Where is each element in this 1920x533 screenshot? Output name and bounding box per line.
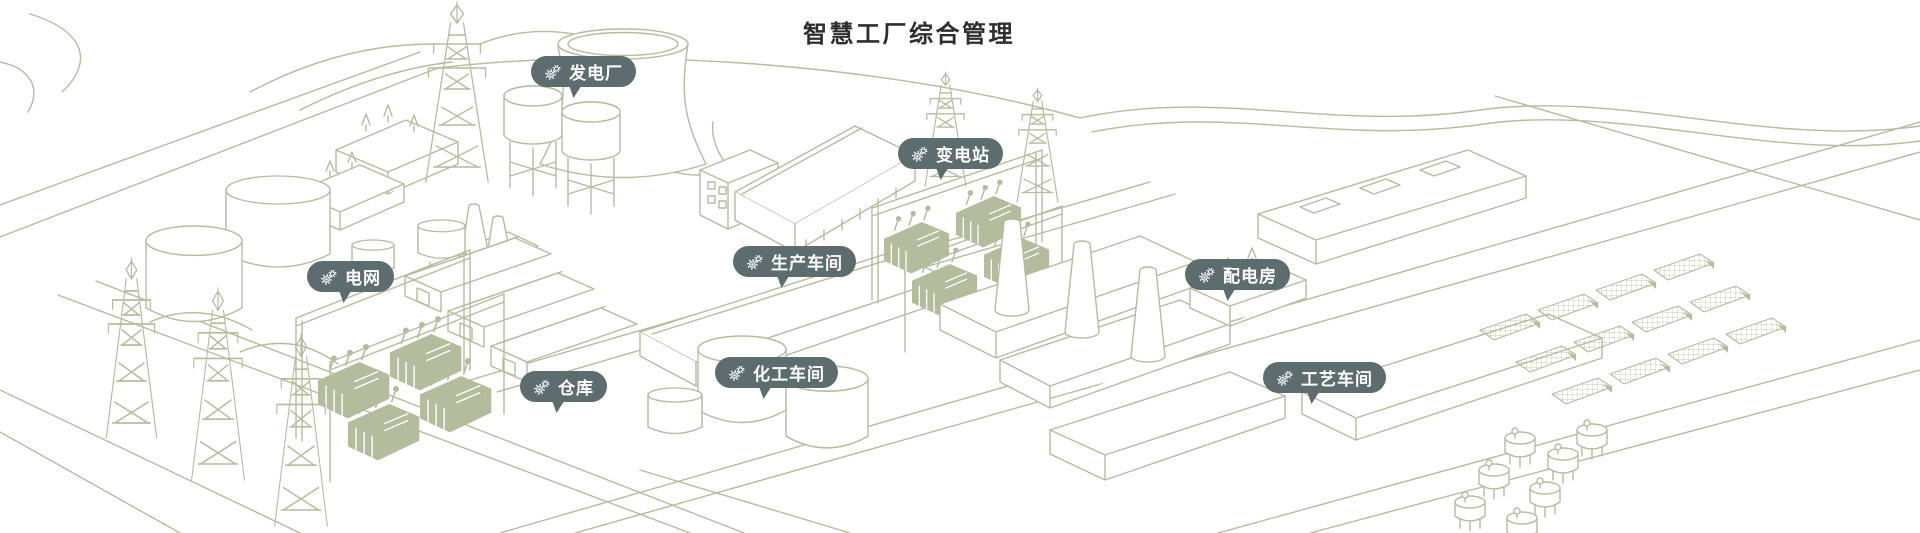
transmission-tower-large <box>250 2 615 182</box>
map-pin-power-grid[interactable]: 电网 <box>307 261 394 292</box>
chimney-plant <box>940 219 1230 408</box>
gears-icon <box>911 145 929 163</box>
map-pin-production-workshop[interactable]: 生产车间 <box>733 246 856 277</box>
small-stacks <box>452 204 538 267</box>
gears-icon <box>544 63 562 81</box>
transmission-towers-left <box>106 258 338 526</box>
drum-tanks <box>1455 420 1607 533</box>
map-pin-distribution-room[interactable]: 配电房 <box>1185 259 1290 290</box>
factory-hall <box>700 126 915 252</box>
pin-label: 仓库 <box>558 374 594 399</box>
gears-icon <box>1276 369 1294 387</box>
map-pin-substation[interactable]: 变电站 <box>898 138 1003 169</box>
map-pin-chemical-workshop[interactable]: 化工车间 <box>715 357 838 388</box>
page-title: 智慧工厂综合管理 <box>803 14 1015 49</box>
map-pin-process-workshop[interactable]: 工艺车间 <box>1263 362 1386 393</box>
storage-tanks-left <box>146 176 465 322</box>
factory-illustration <box>0 0 1920 533</box>
pin-label: 工艺车间 <box>1301 365 1373 390</box>
gears-icon <box>1198 266 1216 284</box>
roads-and-boundaries <box>0 14 1920 533</box>
pin-label: 电网 <box>345 264 381 289</box>
map-pin-warehouse[interactable]: 仓库 <box>520 371 607 402</box>
switchyard-slabs <box>296 105 458 230</box>
gears-icon <box>728 364 746 382</box>
warehouse-sheds <box>405 237 637 383</box>
solar-panel-array <box>1480 254 1786 404</box>
gears-icon <box>320 268 338 286</box>
map-pin-power-plant[interactable]: 发电厂 <box>531 56 636 87</box>
pin-label: 发电厂 <box>569 59 623 84</box>
pin-label: 化工车间 <box>753 360 825 385</box>
smart-factory-map: 智慧工厂综合管理 发电厂 变电站 电网 生产车间 配电房 仓库 化工车间 工艺车… <box>0 0 1920 533</box>
substation-yard <box>872 72 1062 352</box>
pin-label: 配电房 <box>1223 262 1277 287</box>
gears-icon <box>533 378 551 396</box>
distribution-buildings <box>1050 150 1602 480</box>
gears-icon <box>746 253 764 271</box>
pin-label: 变电站 <box>936 141 990 166</box>
pin-label: 生产车间 <box>771 249 843 274</box>
